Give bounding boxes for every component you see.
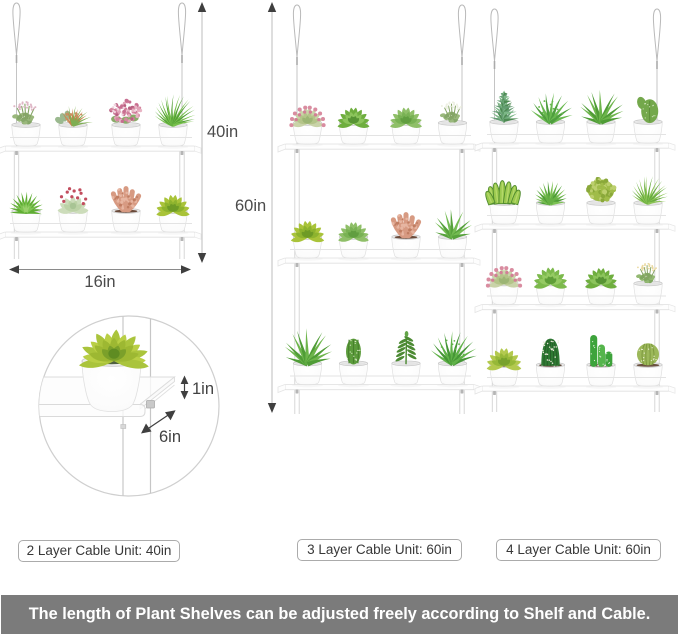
svg-text:16in: 16in (84, 273, 115, 291)
svg-text:60in: 60in (235, 197, 266, 215)
svg-text:1in: 1in (192, 380, 214, 398)
svg-text:40in: 40in (207, 123, 238, 141)
svg-text:6in: 6in (159, 428, 181, 446)
